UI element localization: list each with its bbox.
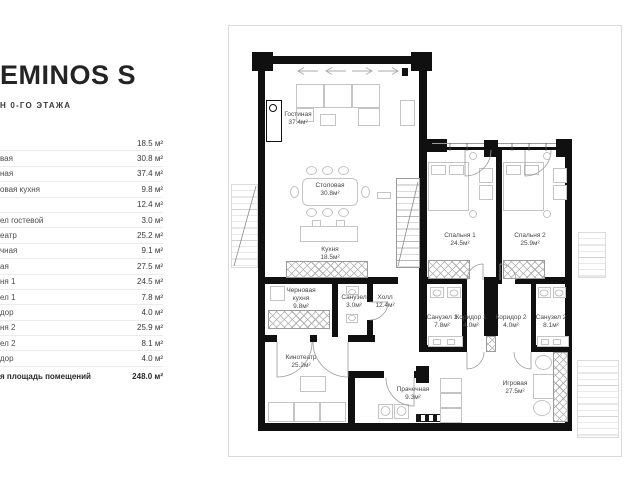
room-label-hall: Холл12.4м²: [371, 294, 399, 310]
dresser: [479, 168, 493, 183]
window-wall-line: [432, 143, 565, 144]
room-label-bathroom-2: Санузел 28.1м²: [533, 314, 569, 330]
pocket-door-panel: [486, 336, 496, 352]
legend-row: ня 225.9 м²: [0, 321, 163, 336]
bathroom2-toilet: [538, 287, 551, 298]
dining-chair: [306, 166, 317, 175]
pillow: [431, 165, 446, 175]
dining-chair: [338, 208, 349, 217]
game-room-wardrobe: [553, 352, 568, 422]
legend-row: ня 124.5 м²: [0, 275, 163, 290]
wall: [496, 150, 502, 284]
dining-chair: [322, 166, 333, 175]
wall: [310, 335, 317, 342]
tv-unit: [402, 68, 408, 76]
wall-pillar: [416, 366, 429, 383]
room-area-legend: 18.5 м² вая30.8 м² ная37.4 м² овая кухня…: [0, 136, 163, 381]
legend-row-label: еатр: [0, 231, 17, 240]
legend-row-label: ел гостевой: [0, 216, 43, 225]
wall: [427, 139, 447, 152]
dresser: [553, 185, 567, 200]
wall: [258, 56, 432, 64]
desk-chair: [535, 355, 552, 370]
dining-chair: [322, 208, 333, 217]
wall: [258, 423, 572, 431]
legend-row: дор4.0 м²: [0, 305, 163, 320]
coffee-table: [320, 114, 336, 126]
wall: [348, 335, 375, 342]
exterior-stair-bottom-right: [577, 360, 619, 438]
kitchen-sink: [336, 220, 345, 227]
wall: [419, 63, 427, 352]
wall: [348, 371, 355, 431]
room-label-utility-kitchen: Черновая кухня9.8м²: [280, 287, 322, 311]
washing-machine: [378, 404, 393, 419]
legend-row: ая27.5 м²: [0, 259, 163, 274]
legend-row-value: 27.5 м²: [137, 262, 163, 271]
media-cabinet: [300, 376, 326, 392]
kitchen-island: [300, 226, 358, 242]
legend-row: чная9.1 м²: [0, 244, 163, 259]
guest-wc-sink: [346, 314, 358, 323]
dresser: [553, 168, 567, 183]
wall: [352, 371, 384, 378]
legend-row: ная37.4 м²: [0, 167, 163, 182]
wall: [332, 284, 338, 337]
legend-row-label: ел 2: [0, 339, 16, 348]
legend-row: дор4.0 м²: [0, 351, 163, 366]
legend-row-value: 24.5 м²: [137, 277, 163, 286]
legend-row-label: вая: [0, 154, 13, 163]
legend-row: вая30.8 м²: [0, 151, 163, 166]
sink-basin: [447, 339, 455, 345]
sink-basin: [553, 339, 561, 345]
legend-row: ел 28.1 м²: [0, 336, 163, 351]
wall-pillar: [556, 139, 572, 157]
legend-row-value: 4.0 м²: [141, 308, 163, 317]
legend-row-label: ня 2: [0, 323, 15, 332]
sofa-section: [324, 84, 352, 108]
washing-machine: [394, 404, 409, 419]
wardrobe-1: [428, 260, 470, 279]
exterior-stair-left: [231, 184, 258, 268]
legend-total-row: я площадь помещений248.0 м²: [0, 367, 163, 381]
cinema-sofa-section: [294, 402, 320, 422]
sink-basin: [433, 339, 441, 345]
kitchen-counter: [286, 261, 368, 278]
hall-cabinet: [440, 378, 462, 393]
room-label-dining: Столовая30.8м²: [304, 182, 356, 198]
legend-row: ел 17.8 м²: [0, 290, 163, 305]
wall: [258, 335, 277, 342]
legend-row-value: 7.8 м²: [141, 293, 163, 302]
pillow: [524, 165, 539, 175]
room-label-game-room: Игровая27.5м²: [497, 380, 533, 396]
room-label-corridor-1: Коридор 14.0м²: [455, 314, 487, 330]
dining-chair: [361, 186, 370, 198]
desk: [533, 374, 555, 399]
pillow: [449, 165, 464, 175]
legend-row-label: овая кухня: [0, 185, 40, 194]
dining-chair: [306, 208, 317, 217]
room-label-corridor-2: Коридор 24.0м²: [495, 314, 527, 330]
legend-row: 18.5 м²: [0, 136, 163, 151]
wardrobe-2: [503, 260, 545, 279]
cinema-sofa-section: [320, 402, 346, 422]
desk-chair: [533, 400, 551, 416]
legend-row-value: 12.4 м²: [137, 200, 163, 209]
legend-row-value: 25.9 м²: [137, 323, 163, 332]
sink-basin: [541, 339, 549, 345]
legend-row-label: чная: [0, 246, 17, 255]
legend-row-value: 30.8 м²: [137, 154, 163, 163]
utility-counter: [268, 310, 330, 329]
legend-row-value: 9.8 м²: [141, 185, 163, 194]
kitchen-sink: [312, 220, 321, 227]
floor-plan-page: { "header": { "title": "EMINOS S", "subt…: [0, 0, 626, 481]
bathroom1-bidet: [447, 287, 461, 298]
dresser: [479, 185, 493, 200]
legend-total-label: я площадь помещений: [0, 372, 91, 381]
console-table: [400, 100, 415, 126]
legend-row-label: ная: [0, 169, 13, 178]
dining-chair: [338, 166, 349, 175]
cinema-sofa-section: [268, 402, 294, 422]
legend-row-value: 37.4 м²: [137, 169, 163, 178]
legend-row-value: 3.0 м²: [141, 216, 163, 225]
room-label-kitchen: Кухня18.5м²: [312, 246, 348, 262]
legend-row-label: дор: [0, 308, 14, 317]
room-label-bedroom-2: Спальня 225.9м²: [511, 232, 549, 248]
legend-row-label: ая: [0, 262, 9, 271]
legend-row-value: 9.1 м²: [141, 246, 163, 255]
hall-cabinet: [440, 408, 462, 423]
room-label-guest-wc: Санузел3.0м²: [339, 294, 369, 310]
legend-total-value: 248.0 м²: [132, 372, 163, 381]
room-label-laundry: Прачечная9.3м²: [392, 386, 434, 402]
stair-tag: [377, 192, 391, 199]
sofa-section: [352, 84, 380, 108]
legend-row: еатр25.2 м²: [0, 228, 163, 243]
threshold-checker: [416, 414, 442, 422]
room-label-living: Гостиная37.4м²: [276, 111, 320, 127]
room-label-cinema: Кинотеатр25.2м²: [281, 354, 321, 370]
legend-row-label: дор: [0, 354, 14, 363]
bathroom2-bidet: [553, 287, 566, 298]
legend-row: овая кухня9.8 м²: [0, 182, 163, 197]
hall-cabinet: [440, 393, 462, 408]
legend-row: 12.4 м²: [0, 198, 163, 213]
legend-row-value: 25.2 м²: [137, 231, 163, 240]
interior-staircase: [396, 178, 420, 268]
sofa-return: [358, 108, 380, 126]
legend-row-value: 4.0 м²: [141, 354, 163, 363]
pillow: [506, 165, 521, 175]
room-label-bedroom-1: Спальня 124.5м²: [441, 232, 479, 248]
wall: [265, 277, 398, 284]
page-title: EMINOS S: [0, 60, 136, 91]
page-subtitle: Н 0-ГО ЭТАЖА: [0, 101, 71, 110]
legend-row-label: ня 1: [0, 277, 15, 286]
legend-row-value: 8.1 м²: [141, 339, 163, 348]
sofa-section: [296, 84, 324, 108]
legend-row-value: 18.5 м²: [137, 139, 163, 148]
exterior-steps-right: [578, 232, 606, 278]
legend-row: ел гостевой3.0 м²: [0, 213, 163, 228]
wall: [258, 56, 265, 431]
dining-chair: [290, 186, 299, 198]
bathroom1-toilet: [430, 287, 444, 298]
legend-row-label: ел 1: [0, 293, 16, 302]
